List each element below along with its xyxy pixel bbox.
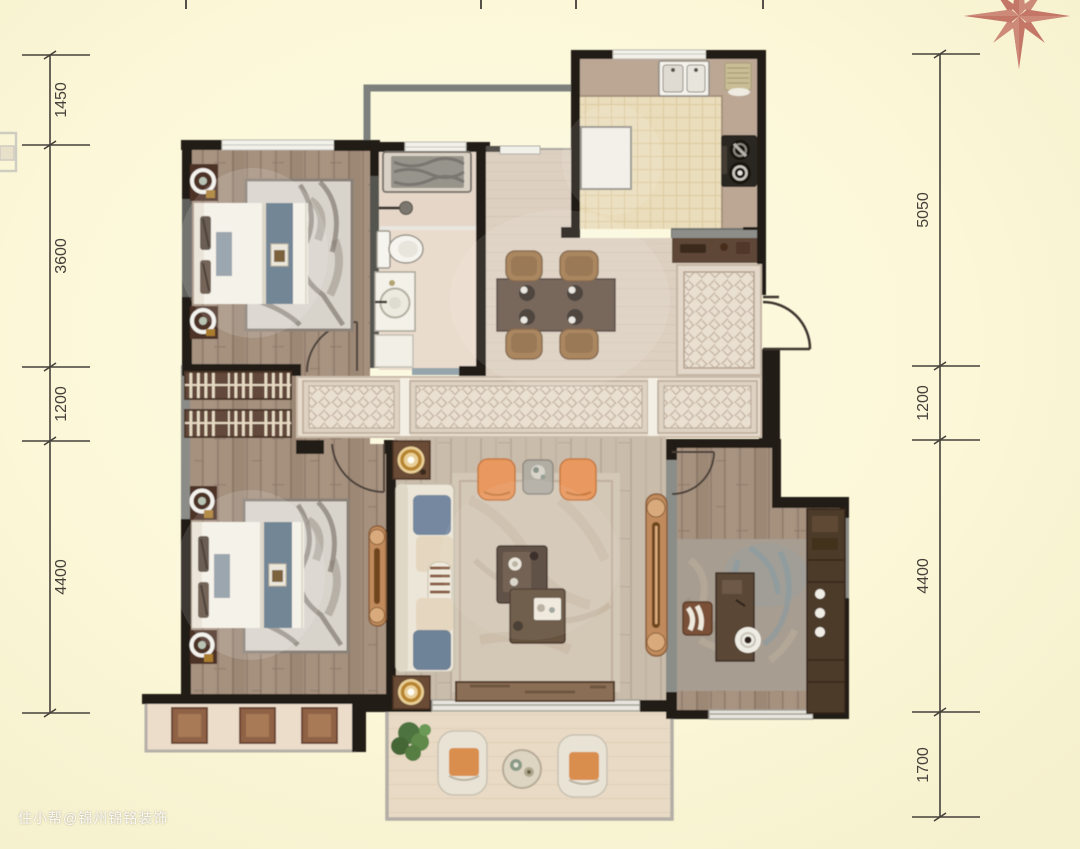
svg-text:4400: 4400 (53, 559, 70, 595)
svg-text:1700: 1700 (915, 747, 932, 783)
svg-text:4400: 4400 (915, 558, 932, 594)
svg-text:1200: 1200 (915, 385, 932, 421)
svg-text:1200: 1200 (53, 386, 70, 422)
svg-text:5050: 5050 (915, 192, 932, 228)
svg-text:3600: 3600 (53, 238, 70, 274)
svg-text:1450: 1450 (53, 82, 70, 118)
